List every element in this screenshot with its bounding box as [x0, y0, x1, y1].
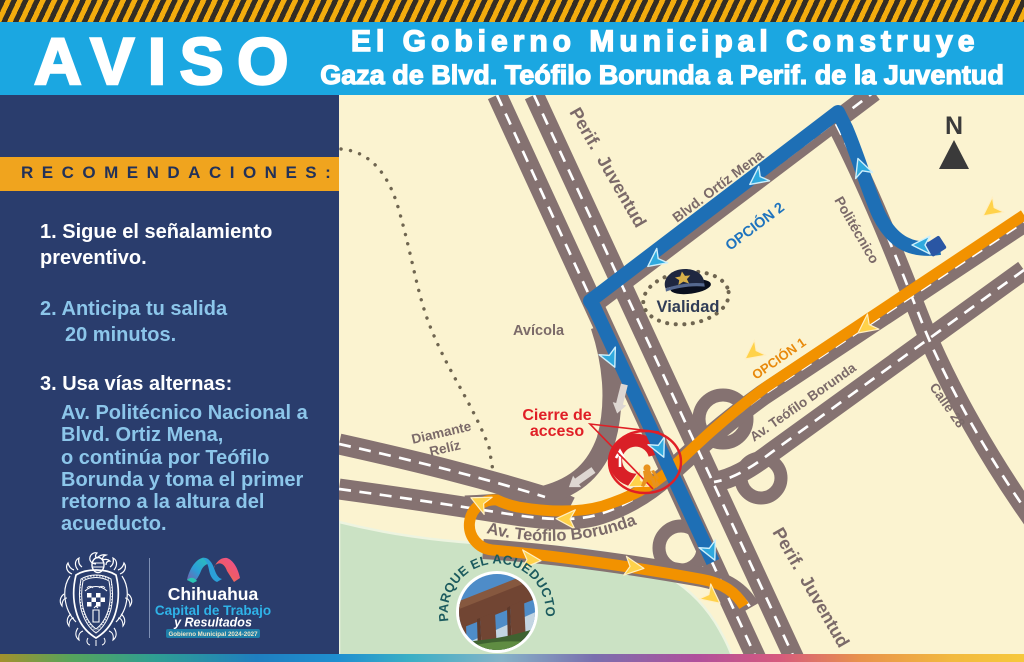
svg-text:Vialidad: Vialidad — [657, 298, 720, 316]
svg-text:y Resultados: y Resultados — [173, 616, 252, 630]
svg-text:Chihuahua: Chihuahua — [168, 584, 259, 604]
svg-text:N: N — [945, 112, 963, 140]
svg-text:Cierre de: Cierre de — [522, 407, 591, 424]
svg-text:acceso: acceso — [530, 423, 584, 440]
svg-text:Avícola: Avícola — [513, 323, 565, 339]
svg-text:Gobierno Municipal 2024-2027: Gobierno Municipal 2024-2027 — [168, 631, 258, 638]
